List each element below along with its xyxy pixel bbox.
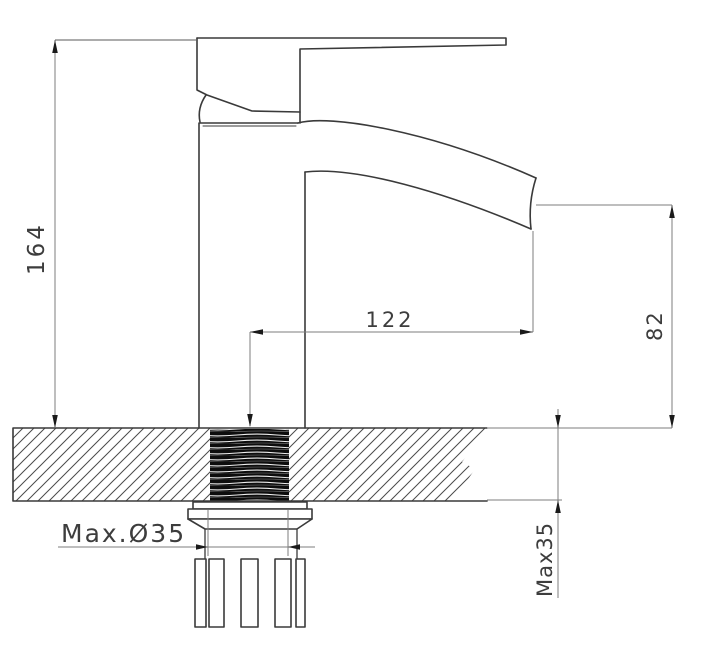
arrow-122-ext-down bbox=[247, 414, 253, 427]
arrow-164-down bbox=[52, 415, 58, 428]
washer bbox=[193, 502, 307, 509]
nut-rib bbox=[296, 559, 305, 627]
dimension-164 bbox=[55, 40, 197, 428]
mounting-neck bbox=[205, 529, 297, 559]
spout-top-curve bbox=[298, 121, 536, 178]
handle-lever bbox=[197, 38, 506, 123]
dimension-label-max-diameter: Max.Ø35 bbox=[61, 519, 186, 548]
arrow-164-up bbox=[52, 40, 58, 53]
dimension-label-122: 122 bbox=[365, 308, 414, 332]
arrow-max35-down bbox=[555, 415, 561, 428]
spout-bottom-curve bbox=[305, 171, 531, 229]
arrow-dia35-left bbox=[196, 544, 208, 549]
nut-rib bbox=[275, 559, 291, 627]
dimension-label-max-thickness: Max35 bbox=[533, 522, 557, 597]
flange-taper bbox=[188, 519, 312, 529]
dimension-label-82: 82 bbox=[643, 310, 667, 341]
arrow-dia35-right bbox=[288, 544, 300, 549]
drawing-page: 164 122 82 Max.Ø35 Max35 bbox=[0, 0, 701, 654]
dimension-lines bbox=[55, 40, 672, 598]
arrow-max35-up bbox=[555, 500, 561, 513]
technical-drawing: 164 122 82 Max.Ø35 Max35 bbox=[0, 0, 701, 654]
countertop-hatch-right bbox=[289, 428, 487, 501]
handle-front-arc bbox=[199, 95, 206, 122]
threaded-shank bbox=[210, 429, 289, 502]
arrow-122-left bbox=[250, 329, 263, 335]
arrow-122-right bbox=[520, 329, 533, 335]
spout-end-face bbox=[530, 178, 536, 229]
arrow-82-up bbox=[669, 205, 675, 218]
countertop-hatch-left bbox=[13, 428, 210, 501]
handle-base bbox=[197, 38, 300, 112]
shank-thread-texture bbox=[210, 429, 289, 502]
dimension-label-164: 164 bbox=[24, 222, 50, 275]
nut-rib bbox=[241, 559, 258, 627]
nut-rib bbox=[195, 559, 206, 627]
nut-rib bbox=[209, 559, 224, 627]
dimension-labels: 164 122 82 Max.Ø35 Max35 bbox=[24, 222, 667, 597]
flange-ring bbox=[188, 509, 312, 519]
arrow-82-down bbox=[669, 415, 675, 428]
mounting-nut bbox=[195, 559, 305, 627]
